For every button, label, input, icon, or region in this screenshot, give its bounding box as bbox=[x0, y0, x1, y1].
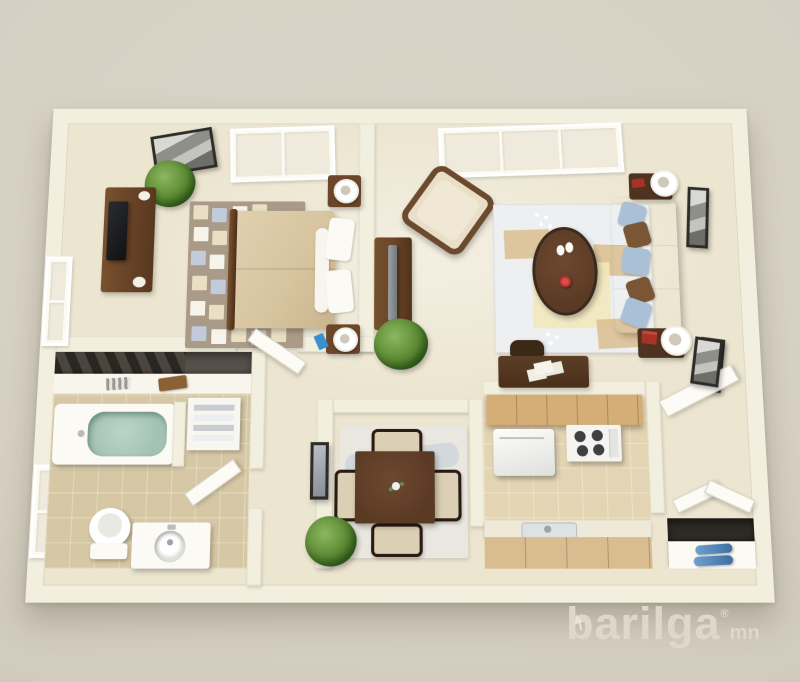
nightstand-lamp bbox=[334, 179, 360, 203]
toilet-bowl bbox=[88, 508, 131, 548]
desk-chair bbox=[510, 340, 544, 356]
rug-square bbox=[209, 305, 224, 320]
sofa-pillow-blue bbox=[621, 246, 651, 276]
wall-bath-east-b bbox=[246, 508, 262, 586]
striped-box bbox=[106, 377, 130, 391]
bathtub-water bbox=[87, 412, 168, 457]
tv-on-dresser bbox=[106, 201, 128, 260]
rug-square bbox=[190, 301, 205, 316]
dining-wall-mirror bbox=[310, 442, 329, 499]
rug-square bbox=[194, 227, 209, 241]
watermark-logo: barilga®mn bbox=[566, 598, 760, 650]
sink-faucet bbox=[167, 525, 175, 530]
window-pane bbox=[502, 130, 560, 171]
rug-square bbox=[193, 205, 208, 219]
window-pane bbox=[236, 133, 282, 177]
dining-chair-bottom bbox=[371, 523, 423, 557]
sofa bbox=[611, 199, 681, 334]
tub-faucet bbox=[77, 430, 84, 437]
rug-square bbox=[209, 255, 224, 269]
bed-pillow bbox=[325, 269, 355, 314]
window-pane bbox=[560, 128, 618, 169]
wall-tub-divider bbox=[172, 402, 186, 467]
blue-shoe bbox=[695, 543, 733, 555]
sink-faucet bbox=[544, 526, 551, 533]
apartment-floorplan bbox=[25, 109, 774, 603]
toilet-tank bbox=[90, 543, 128, 559]
watermark-brand: barilga bbox=[566, 598, 721, 649]
wall-bedroom-east bbox=[358, 123, 375, 352]
rug-square bbox=[211, 280, 226, 295]
red-flowers bbox=[559, 276, 571, 288]
entry-wall-frame bbox=[690, 336, 723, 387]
window-pane bbox=[284, 131, 330, 175]
end-table-lamp bbox=[650, 170, 679, 197]
vase-decor bbox=[138, 191, 150, 200]
vase-decor bbox=[133, 277, 146, 288]
rug-dots bbox=[546, 332, 550, 336]
red-book bbox=[631, 178, 645, 188]
rug-square bbox=[191, 251, 206, 265]
art-photo bbox=[689, 190, 706, 246]
living-picture-window bbox=[438, 122, 625, 178]
dresser bbox=[101, 187, 157, 292]
desk-papers bbox=[533, 360, 553, 375]
dining-table bbox=[355, 451, 435, 523]
room-bedroom bbox=[56, 123, 360, 352]
stove bbox=[566, 425, 622, 462]
rug-square bbox=[212, 208, 227, 222]
rug-square bbox=[192, 276, 207, 290]
red-books bbox=[641, 333, 657, 344]
counter-cabinets bbox=[484, 537, 652, 569]
rug-square bbox=[191, 326, 206, 341]
bathtub bbox=[52, 404, 176, 465]
closet-counter bbox=[53, 374, 251, 394]
sofa-pillow-brown bbox=[622, 221, 652, 250]
art-photo bbox=[693, 340, 720, 385]
window-pane bbox=[444, 132, 501, 173]
watermark-tld: mn bbox=[730, 622, 760, 644]
room-kitchen bbox=[483, 395, 653, 569]
shoe-cabinet bbox=[667, 518, 756, 568]
rug-square bbox=[212, 231, 227, 245]
bed-pillow bbox=[324, 217, 355, 262]
wall-bath-east-a bbox=[249, 352, 266, 469]
scene-background: { "meta": { "description": "3D rendered … bbox=[0, 0, 800, 682]
living-plant bbox=[374, 319, 428, 370]
sofa-pillow-blue bbox=[619, 296, 653, 330]
table-centerpiece bbox=[392, 482, 400, 490]
rug-dots bbox=[535, 213, 539, 217]
flat-tv bbox=[388, 245, 397, 320]
stove-burners bbox=[574, 431, 585, 442]
folded-towels bbox=[194, 405, 235, 411]
room-living bbox=[374, 123, 747, 401]
living-wall-frame-top bbox=[686, 187, 709, 249]
chair-cushion bbox=[414, 177, 482, 243]
sink-basin bbox=[154, 531, 186, 563]
mirror-glass bbox=[313, 445, 326, 496]
end-table-lamp bbox=[660, 325, 692, 356]
registered-mark: ® bbox=[721, 608, 730, 620]
shoe-cabinet-drawer bbox=[668, 541, 756, 568]
closet-hanging-clothes bbox=[54, 352, 185, 376]
media-console bbox=[374, 237, 412, 330]
fridge-handle bbox=[499, 437, 544, 439]
closet-nook bbox=[53, 352, 251, 394]
towel-shelf bbox=[187, 398, 241, 451]
writing-desk bbox=[498, 356, 589, 388]
blue-shoe bbox=[693, 555, 733, 567]
stove-control-panel bbox=[609, 429, 619, 457]
refrigerator bbox=[493, 429, 555, 476]
candles bbox=[556, 245, 564, 256]
sink-vanity bbox=[131, 522, 211, 568]
upper-cabinets bbox=[487, 395, 643, 425]
nightstand-lamp bbox=[333, 327, 358, 352]
bedroom-skylight-window bbox=[230, 125, 336, 182]
kitchen-counter bbox=[484, 520, 652, 568]
rug-square bbox=[211, 329, 226, 344]
wood-tray bbox=[158, 375, 187, 392]
